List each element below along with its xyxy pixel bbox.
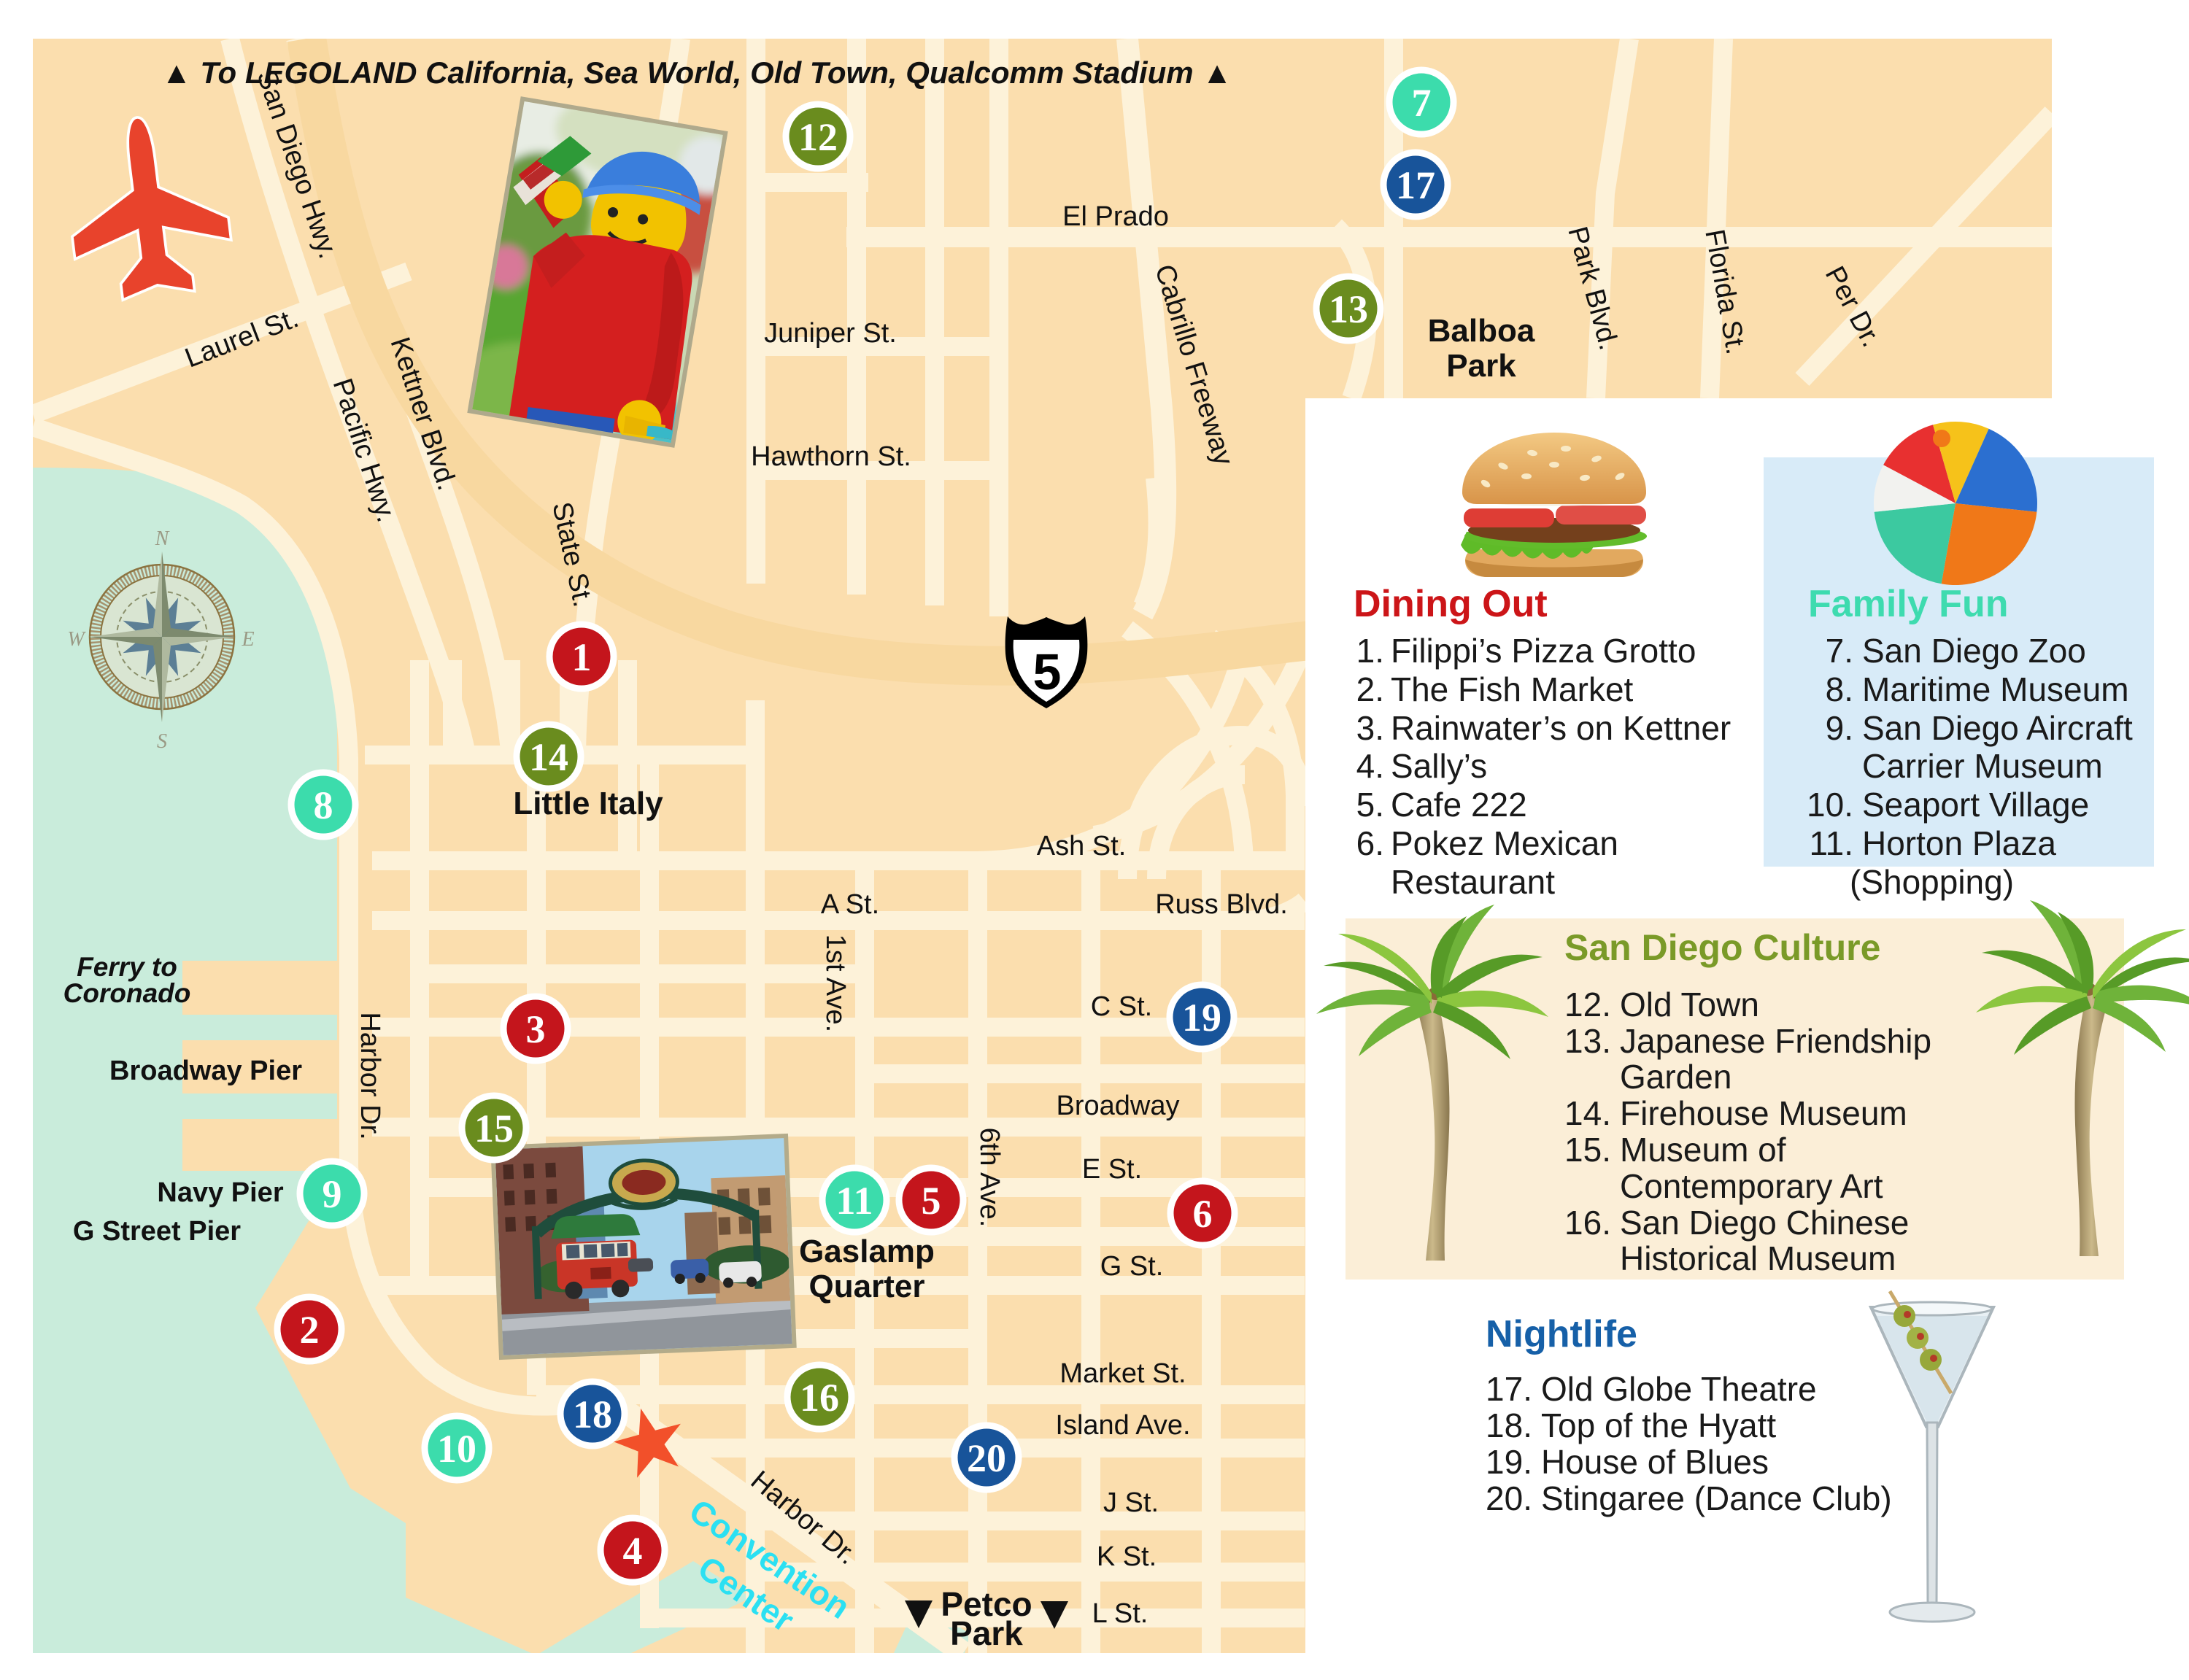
svg-text:6.: 6. (1356, 824, 1384, 862)
svg-text:Seaport Village: Seaport Village (1862, 786, 2089, 824)
svg-text:Horton Plaza: Horton Plaza (1862, 824, 2056, 862)
svg-text:El Prado: El Prado (1062, 201, 1169, 232)
svg-text:▲ To LEGOLAND California, Sea: ▲ To LEGOLAND California, Sea World, Old… (161, 55, 1232, 90)
svg-text:16.: 16. (1564, 1204, 1611, 1242)
svg-text:13: 13 (1329, 287, 1368, 331)
svg-text:Juniper St.: Juniper St. (764, 318, 897, 349)
svg-text:Hawthorn St.: Hawthorn St. (751, 441, 911, 472)
svg-text:House of Blues: House of Blues (1541, 1443, 1769, 1481)
svg-text:Park: Park (1446, 348, 1516, 384)
svg-text:18: 18 (573, 1393, 612, 1436)
svg-text:20.: 20. (1486, 1479, 1532, 1517)
svg-text:10: 10 (437, 1427, 476, 1471)
svg-text:16: 16 (800, 1376, 839, 1420)
svg-text:6th Ave.: 6th Ave. (974, 1128, 1005, 1228)
svg-text:15: 15 (474, 1107, 514, 1150)
svg-text:The Fish Market: The Fish Market (1391, 670, 1634, 708)
svg-text:7.: 7. (1826, 632, 1853, 670)
svg-text:S: S (157, 730, 167, 753)
svg-text:J St.: J St. (1103, 1487, 1159, 1518)
svg-text:N: N (155, 527, 170, 550)
svg-text:11: 11 (835, 1179, 873, 1223)
svg-text:4: 4 (623, 1529, 643, 1573)
svg-text:5: 5 (1033, 643, 1062, 700)
svg-text:10.: 10. (1807, 786, 1853, 824)
svg-text:Firehouse Museum: Firehouse Museum (1620, 1094, 1907, 1132)
svg-text:5: 5 (922, 1179, 941, 1223)
svg-text:San Diego Zoo: San Diego Zoo (1862, 632, 2086, 670)
svg-text:8.: 8. (1826, 670, 1853, 708)
svg-text:E: E (241, 628, 254, 651)
svg-text:Quarter: Quarter (809, 1269, 925, 1304)
svg-text:K St.: K St. (1097, 1541, 1157, 1572)
svg-text:Nightlife: Nightlife (1486, 1313, 1637, 1355)
svg-text:Coronado: Coronado (63, 978, 191, 1008)
svg-text:Sally’s: Sally’s (1391, 747, 1487, 785)
svg-text:12.: 12. (1564, 986, 1611, 1023)
svg-text:18.: 18. (1486, 1406, 1532, 1444)
svg-text:C St.: C St. (1091, 991, 1152, 1022)
svg-text:Restaurant: Restaurant (1391, 863, 1555, 901)
svg-text:Top of the Hyatt: Top of the Hyatt (1541, 1406, 1776, 1444)
svg-text:Carrier Museum: Carrier Museum (1862, 747, 2103, 785)
svg-text:14: 14 (529, 735, 568, 779)
svg-text:1: 1 (572, 635, 592, 679)
svg-text:(Shopping): (Shopping) (1850, 863, 2014, 901)
svg-text:San Diego Culture: San Diego Culture (1564, 927, 1880, 968)
svg-text:W: W (67, 628, 86, 651)
svg-text:Little Italy: Little Italy (513, 786, 663, 821)
svg-text:San Diego Chinese: San Diego Chinese (1620, 1204, 1909, 1242)
svg-text:Maritime Museum: Maritime Museum (1862, 670, 2129, 708)
svg-text:17: 17 (1396, 163, 1435, 207)
svg-text:San Diego Aircraft: San Diego Aircraft (1862, 709, 2133, 747)
svg-text:12: 12 (798, 115, 838, 159)
svg-text:1st Ave.: 1st Ave. (820, 934, 851, 1033)
svg-text:Ferry to: Ferry to (77, 952, 177, 982)
svg-text:6: 6 (1193, 1192, 1213, 1236)
svg-text:2: 2 (300, 1308, 320, 1352)
svg-text:Russ Blvd.: Russ Blvd. (1155, 889, 1288, 920)
svg-text:15.: 15. (1564, 1131, 1611, 1169)
svg-text:Harbor Dr.: Harbor Dr. (355, 1012, 385, 1139)
svg-text:A St.: A St. (821, 889, 879, 920)
svg-text:Pokez Mexican: Pokez Mexican (1391, 824, 1618, 862)
svg-text:17.: 17. (1486, 1370, 1532, 1408)
svg-text:13.: 13. (1564, 1022, 1611, 1060)
svg-text:Historical Museum: Historical Museum (1620, 1239, 1896, 1277)
svg-text:14.: 14. (1564, 1094, 1611, 1132)
svg-text:L St.: L St. (1092, 1598, 1148, 1629)
svg-text:G Street Pier: G Street Pier (73, 1216, 241, 1247)
svg-text:E St.: E St. (1082, 1154, 1142, 1185)
svg-text:Cafe 222: Cafe 222 (1391, 786, 1527, 824)
svg-text:11.: 11. (1809, 824, 1853, 862)
svg-text:Ash St.: Ash St. (1037, 831, 1127, 862)
svg-text:4.: 4. (1356, 747, 1384, 785)
svg-text:Broadway: Broadway (1057, 1091, 1180, 1121)
svg-text:Rainwater’s on Kettner: Rainwater’s on Kettner (1391, 709, 1731, 747)
svg-text:2.: 2. (1356, 670, 1384, 708)
svg-text:Park: Park (950, 1614, 1023, 1652)
svg-text:Japanese Friendship: Japanese Friendship (1620, 1022, 1931, 1060)
svg-text:Old Town: Old Town (1620, 986, 1759, 1023)
svg-text:Balboa: Balboa (1428, 313, 1535, 349)
svg-text:Museum of: Museum of (1620, 1131, 1786, 1169)
svg-text:Gaslamp: Gaslamp (799, 1234, 935, 1269)
svg-text:20: 20 (967, 1436, 1006, 1480)
svg-text:Filippi’s Pizza Grotto: Filippi’s Pizza Grotto (1391, 632, 1696, 670)
svg-text:3.: 3. (1356, 709, 1384, 747)
svg-text:8: 8 (314, 783, 333, 827)
svg-text:Garden: Garden (1620, 1058, 1731, 1096)
svg-text:Contemporary Art: Contemporary Art (1620, 1167, 1883, 1205)
svg-text:3: 3 (526, 1007, 546, 1051)
svg-text:5.: 5. (1356, 786, 1384, 824)
svg-text:Dining Out: Dining Out (1354, 583, 1548, 625)
svg-text:Family Fun: Family Fun (1808, 583, 2008, 625)
svg-text:Stingaree (Dance Club): Stingaree (Dance Club) (1541, 1479, 1892, 1517)
svg-text:G St.: G St. (1100, 1251, 1164, 1282)
svg-text:19: 19 (1182, 996, 1221, 1040)
svg-text:Navy Pier: Navy Pier (157, 1177, 283, 1208)
svg-text:9.: 9. (1826, 709, 1853, 747)
svg-text:Market St.: Market St. (1059, 1358, 1186, 1389)
svg-text:Island Ave.: Island Ave. (1055, 1410, 1190, 1441)
svg-text:Broadway Pier: Broadway Pier (109, 1056, 302, 1086)
svg-text:1.: 1. (1356, 632, 1384, 670)
svg-text:7: 7 (1412, 81, 1432, 125)
svg-text:19.: 19. (1486, 1443, 1532, 1481)
svg-text:Old Globe Theatre: Old Globe Theatre (1541, 1370, 1817, 1408)
svg-text:9: 9 (323, 1172, 342, 1216)
